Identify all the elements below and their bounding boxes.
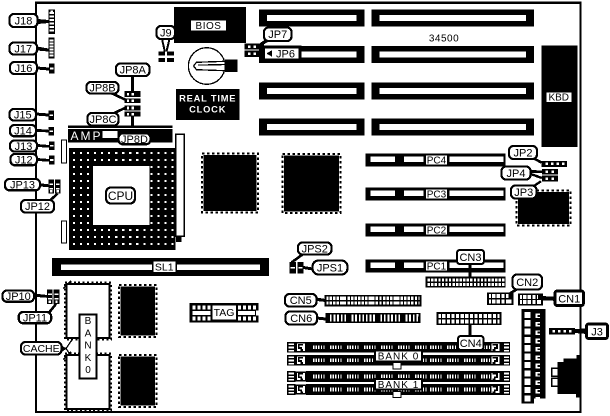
svg-text:CN4: CN4 bbox=[460, 338, 482, 350]
svg-text:CN5: CN5 bbox=[290, 295, 312, 307]
svg-text:CN6: CN6 bbox=[290, 313, 312, 325]
svg-text:CN3: CN3 bbox=[459, 252, 481, 264]
svg-text:CLOCK: CLOCK bbox=[189, 105, 226, 115]
svg-text:JP8B: JP8B bbox=[89, 83, 115, 95]
svg-text:JPS1: JPS1 bbox=[317, 262, 343, 274]
svg-text:J3: J3 bbox=[591, 326, 603, 338]
svg-text:TAG: TAG bbox=[214, 307, 235, 319]
svg-text:B: B bbox=[85, 316, 92, 327]
svg-text:CN1: CN1 bbox=[558, 294, 580, 306]
svg-text:J15: J15 bbox=[14, 110, 32, 122]
svg-text:0: 0 bbox=[85, 365, 91, 376]
svg-text:JP8D: JP8D bbox=[121, 134, 148, 146]
svg-text:PC3: PC3 bbox=[427, 190, 447, 201]
svg-text:JP6: JP6 bbox=[276, 48, 295, 60]
svg-text:J13: J13 bbox=[15, 141, 33, 153]
svg-text:PC2: PC2 bbox=[427, 226, 447, 237]
svg-text:JP3: JP3 bbox=[514, 187, 533, 199]
svg-text:SL1: SL1 bbox=[155, 261, 174, 273]
svg-text:J17: J17 bbox=[14, 43, 32, 55]
svg-text:PC4: PC4 bbox=[427, 156, 447, 167]
svg-text:J14: J14 bbox=[14, 126, 32, 138]
svg-text:JP10: JP10 bbox=[6, 291, 31, 303]
svg-text:REAL TIME: REAL TIME bbox=[179, 94, 236, 104]
svg-text:BANK 1: BANK 1 bbox=[378, 380, 420, 391]
svg-text:J18: J18 bbox=[15, 15, 33, 27]
svg-text:BANK 0: BANK 0 bbox=[378, 352, 420, 363]
svg-text:34500: 34500 bbox=[429, 34, 459, 45]
svg-text:JP11: JP11 bbox=[23, 313, 47, 325]
svg-text:PC1: PC1 bbox=[427, 262, 447, 273]
svg-text:J12: J12 bbox=[15, 155, 33, 167]
svg-text:AMP: AMP bbox=[71, 129, 103, 143]
svg-text:CPU: CPU bbox=[108, 189, 133, 203]
svg-text:CACHE: CACHE bbox=[23, 343, 60, 355]
svg-text:KBD: KBD bbox=[548, 93, 569, 104]
svg-text:JP7: JP7 bbox=[268, 29, 287, 41]
svg-text:A: A bbox=[85, 328, 92, 339]
svg-text:N: N bbox=[84, 341, 91, 352]
svg-text:JP4: JP4 bbox=[507, 168, 526, 180]
svg-text:JP8C: JP8C bbox=[90, 114, 117, 126]
svg-text:JP2: JP2 bbox=[514, 147, 533, 159]
svg-text:JPS2: JPS2 bbox=[302, 243, 328, 255]
svg-text:K: K bbox=[85, 353, 92, 364]
svg-text:J16: J16 bbox=[15, 63, 33, 75]
svg-text:JP12: JP12 bbox=[25, 201, 50, 213]
svg-text:J9: J9 bbox=[160, 27, 172, 39]
svg-text:JP13: JP13 bbox=[10, 180, 35, 192]
svg-text:JP8A: JP8A bbox=[120, 65, 147, 77]
svg-text:CN2: CN2 bbox=[516, 277, 538, 289]
svg-text:BIOS: BIOS bbox=[196, 21, 222, 32]
